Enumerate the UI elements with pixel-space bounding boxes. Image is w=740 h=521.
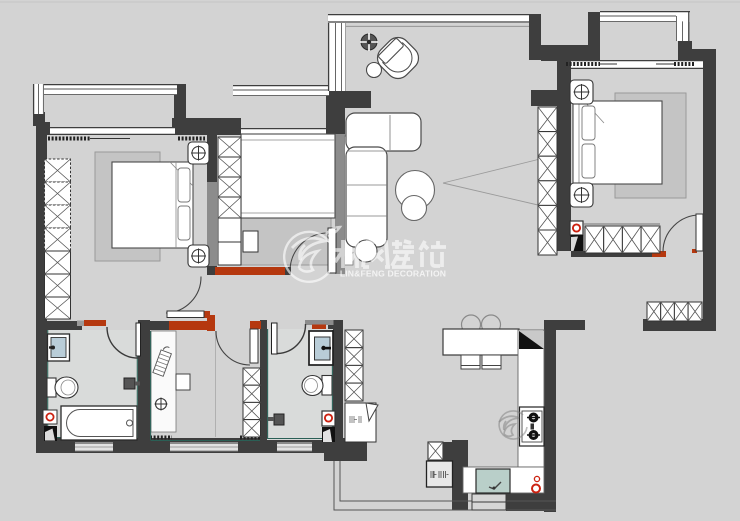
svg-text:LIN&FENG DECORATION: LIN&FENG DECORATION [340, 269, 446, 279]
